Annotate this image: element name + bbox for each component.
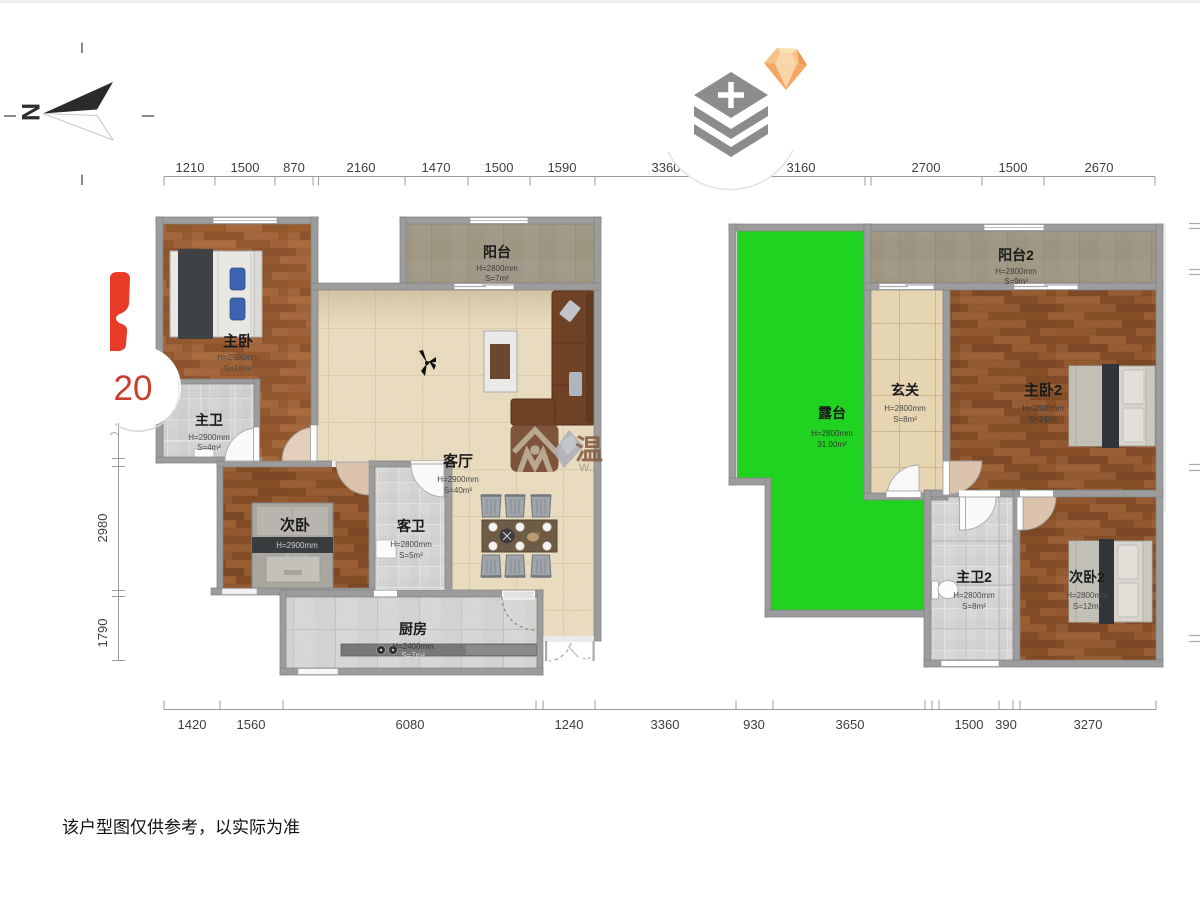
svg-text:温: 温 (575, 434, 603, 465)
svg-text:1500: 1500 (999, 160, 1028, 175)
svg-text:S=16m²: S=16m² (224, 364, 253, 373)
svg-text:次卧2: 次卧2 (1069, 569, 1105, 585)
svg-text:S=7m²: S=7m² (485, 274, 509, 283)
svg-text:1500: 1500 (955, 717, 984, 732)
svg-text:H=2800mm: H=2800mm (476, 264, 518, 273)
svg-text:S=4m²: S=4m² (197, 443, 221, 452)
svg-text:930: 930 (743, 717, 765, 732)
svg-text:H=2800mm: H=2800mm (953, 591, 995, 600)
svg-text:1210: 1210 (176, 160, 205, 175)
svg-text:H=2400mm: H=2400mm (392, 642, 434, 651)
svg-text:3650: 3650 (836, 717, 865, 732)
svg-text:1560: 1560 (237, 717, 266, 732)
svg-text:390: 390 (995, 717, 1017, 732)
svg-text:2700: 2700 (912, 160, 941, 175)
svg-text:阳台2: 阳台2 (998, 247, 1034, 263)
svg-text:厨房: 厨房 (399, 621, 427, 637)
svg-text:2980: 2980 (95, 514, 110, 543)
svg-text:S=12m²: S=12m² (1073, 602, 1102, 611)
svg-text:S=9m²: S=9m² (285, 552, 309, 561)
svg-text:次卧: 次卧 (280, 516, 310, 534)
svg-text:H=2800mm: H=2800mm (811, 429, 853, 438)
svg-text:N: N (16, 103, 44, 121)
svg-text:玄关: 玄关 (891, 382, 919, 398)
svg-text:客厅: 客厅 (442, 452, 473, 470)
svg-text:W..: W.. (579, 462, 595, 474)
svg-text:S=40m²: S=40m² (444, 486, 473, 495)
svg-text:31.00m²: 31.00m² (817, 440, 847, 449)
svg-text:3160: 3160 (787, 160, 816, 175)
svg-text:该户型图仅供参考，以实际为准: 该户型图仅供参考，以实际为准 (62, 818, 300, 837)
svg-text:H=2800mm: H=2800mm (884, 404, 926, 413)
svg-text:H=2800mm: H=2800mm (1066, 591, 1108, 600)
svg-text:S=24m²: S=24m² (1029, 415, 1058, 424)
svg-text:主卫: 主卫 (195, 412, 223, 428)
svg-text:S=8m²: S=8m² (962, 602, 986, 611)
svg-text:露台: 露台 (818, 405, 846, 421)
svg-text:20: 20 (114, 369, 153, 408)
svg-text:2160: 2160 (347, 160, 376, 175)
svg-text:2670: 2670 (1085, 160, 1114, 175)
svg-text:870: 870 (283, 160, 305, 175)
svg-text:S=5m²: S=5m² (399, 551, 423, 560)
svg-text:1500: 1500 (485, 160, 514, 175)
svg-text:主卧2: 主卧2 (1024, 381, 1062, 399)
svg-text:3360: 3360 (651, 717, 680, 732)
svg-text:1590: 1590 (548, 160, 577, 175)
svg-text:H=2800mm: H=2800mm (995, 267, 1037, 276)
svg-text:3270: 3270 (1074, 717, 1103, 732)
svg-text:1240: 1240 (555, 717, 584, 732)
svg-text:H=2800mm: H=2800mm (390, 540, 432, 549)
svg-text:1420: 1420 (178, 717, 207, 732)
svg-text:H=2900mm: H=2900mm (188, 433, 230, 442)
svg-text:H=2900mm: H=2900mm (276, 541, 318, 550)
svg-text:主卫2: 主卫2 (956, 569, 992, 585)
svg-text:S=8m²: S=8m² (893, 415, 917, 424)
svg-text:S=7m²: S=7m² (401, 651, 425, 660)
svg-text:1500: 1500 (231, 160, 260, 175)
svg-text:1790: 1790 (95, 619, 110, 648)
svg-text:客卫: 客卫 (396, 518, 425, 534)
svg-text:主卧: 主卧 (223, 332, 253, 350)
svg-text:H=2900mm: H=2900mm (437, 475, 479, 484)
svg-text:阳台: 阳台 (483, 244, 511, 260)
svg-text:1470: 1470 (422, 160, 451, 175)
svg-text:S=9m²: S=9m² (1004, 277, 1028, 286)
svg-text:H=2800mm: H=2800mm (1022, 404, 1064, 413)
svg-text:H=2900mm: H=2900mm (217, 353, 259, 362)
svg-text:6080: 6080 (396, 717, 425, 732)
